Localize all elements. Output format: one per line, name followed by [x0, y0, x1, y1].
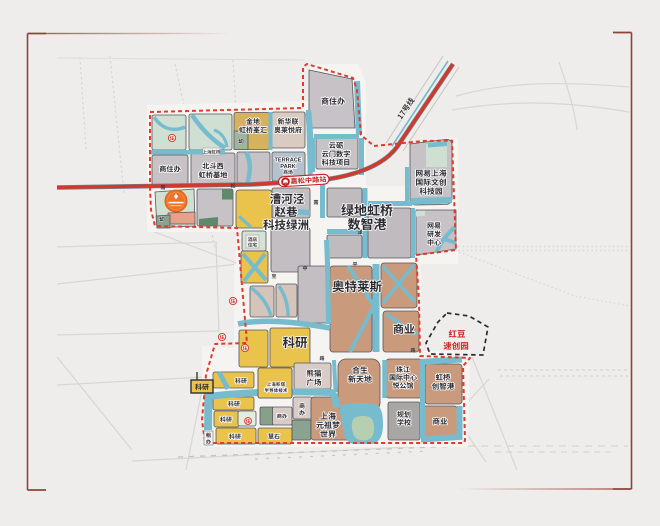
svg-text:PARK: PARK [280, 164, 295, 170]
svg-text:TERRACE: TERRACE [274, 158, 301, 164]
